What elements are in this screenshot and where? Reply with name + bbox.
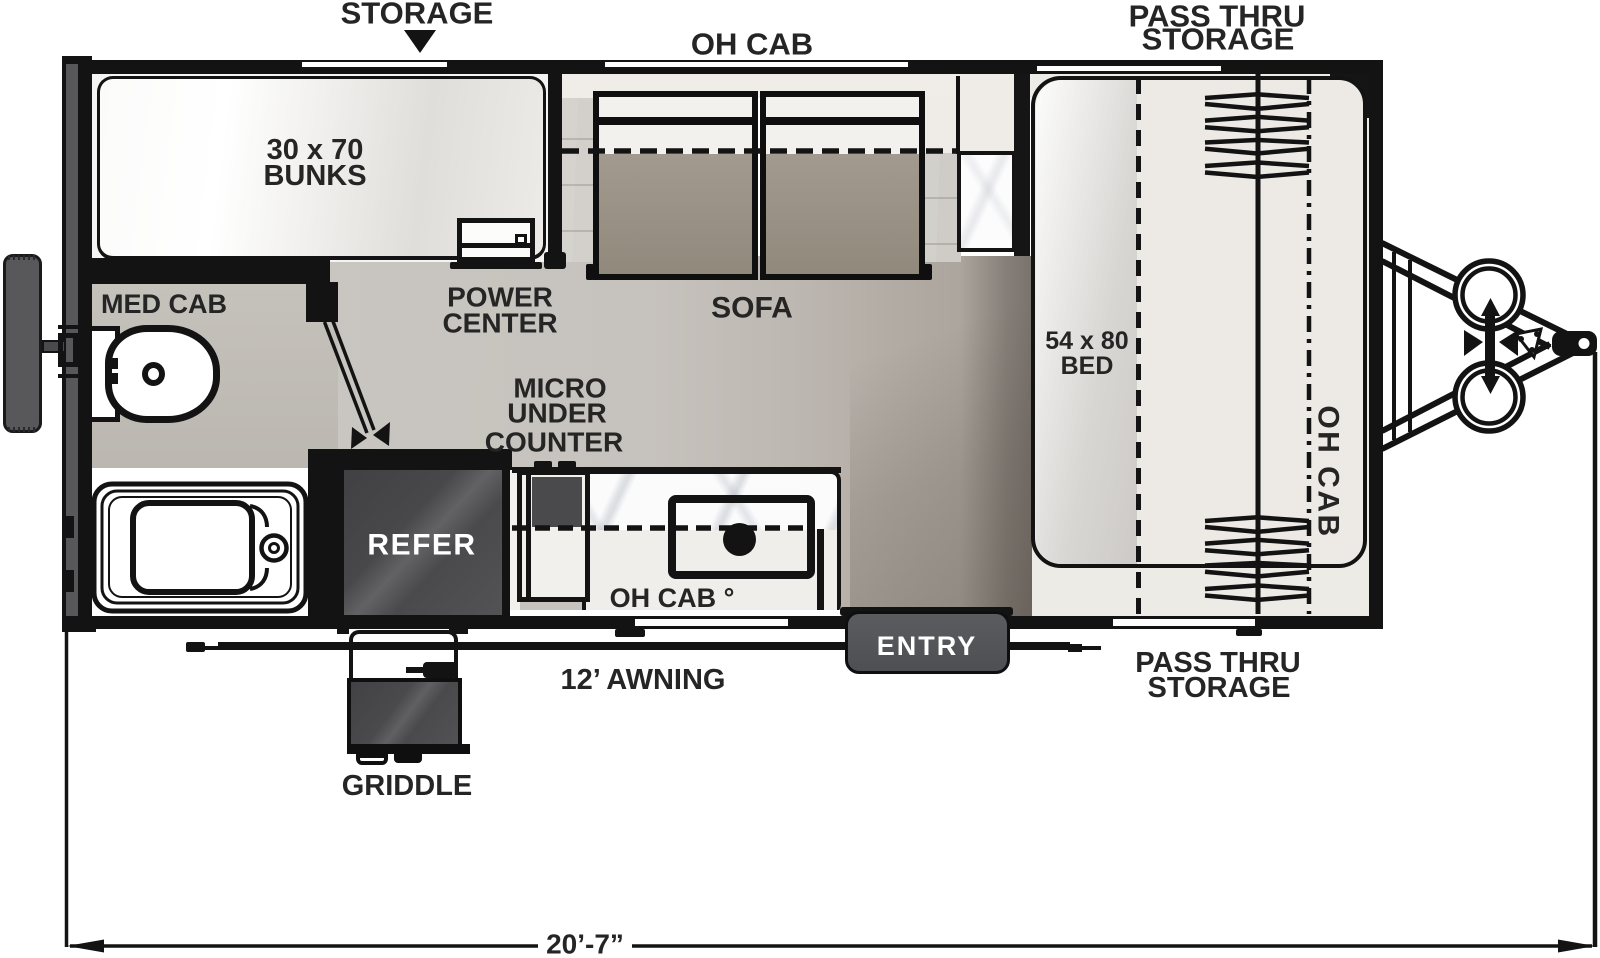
svg-text:ENTRY: ENTRY [877,631,978,661]
svg-text:STORAGE: STORAGE [1142,22,1295,57]
svg-text:SOFA: SOFA [711,292,793,325]
svg-text:BED: BED [1061,352,1114,380]
svg-text:OH CAB °: OH CAB ° [610,583,735,613]
svg-text:54 x 80: 54 x 80 [1045,327,1128,355]
svg-text:GRIDDLE: GRIDDLE [342,770,473,802]
svg-text:MED CAB: MED CAB [101,289,227,319]
svg-text:OH CAB: OH CAB [691,27,813,62]
svg-text:20’-7”: 20’-7” [546,929,624,958]
svg-text:COUNTER: COUNTER [485,427,623,458]
svg-text:BUNKS: BUNKS [263,160,366,192]
svg-text:CENTER: CENTER [442,308,557,339]
svg-text:STORAGE: STORAGE [341,0,494,31]
svg-text:REFER: REFER [367,529,476,562]
svg-text:STORAGE: STORAGE [1148,672,1291,704]
svg-text:12’ AWNING: 12’ AWNING [561,664,726,696]
svg-text:UNDER: UNDER [507,398,607,429]
svg-text:OH CAB: OH CAB [1312,405,1345,538]
